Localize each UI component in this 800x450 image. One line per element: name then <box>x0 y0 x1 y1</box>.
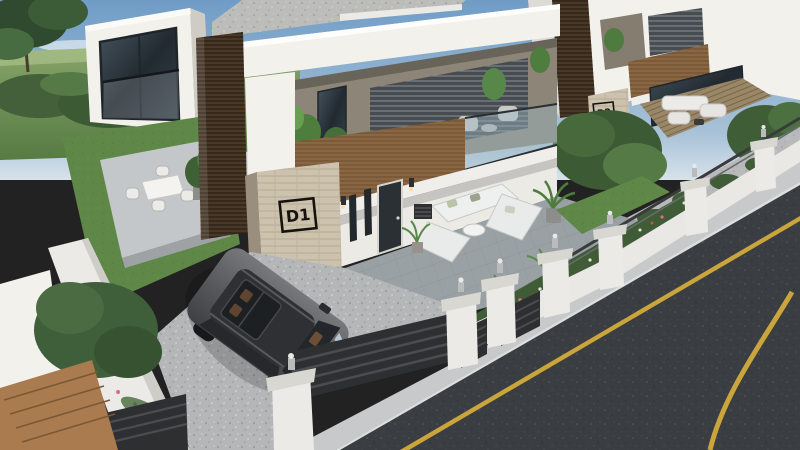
render-canvas: D2 <box>0 0 800 450</box>
entrance-door <box>378 180 402 254</box>
door-handle <box>396 216 399 219</box>
scene-svg: D2 <box>0 0 800 450</box>
unit-sign-d1-text: D1 <box>285 205 311 226</box>
coffee-table <box>463 224 485 236</box>
villa-2-balcony-plant <box>604 28 624 52</box>
